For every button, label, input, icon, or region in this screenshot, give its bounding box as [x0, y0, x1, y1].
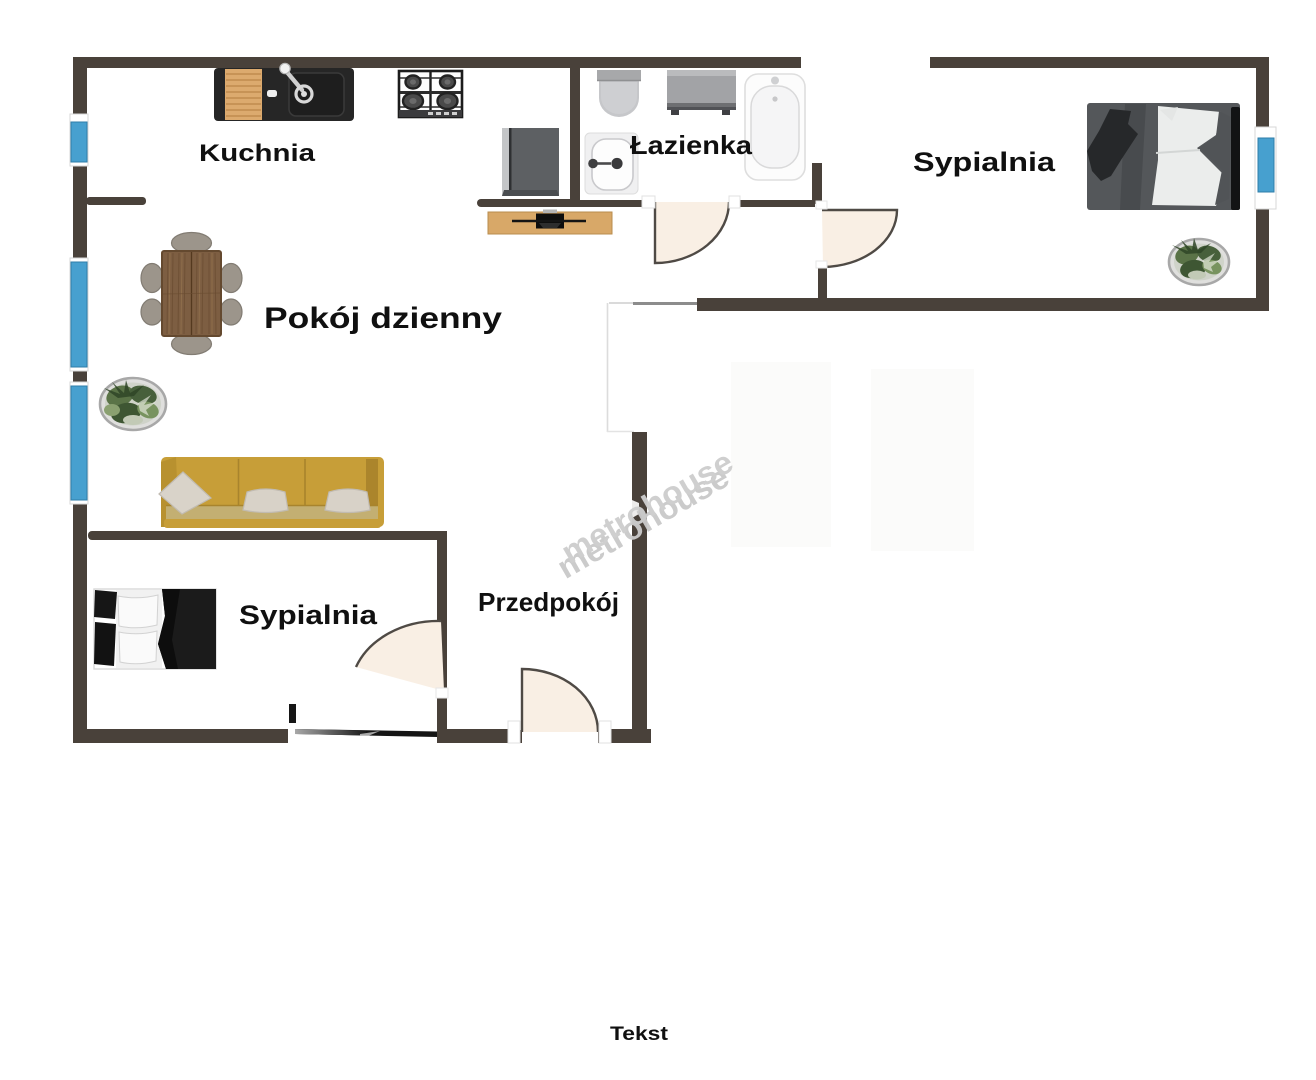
svg-text:Tekst: Tekst	[610, 1024, 669, 1045]
svg-text:Łazienka: Łazienka	[630, 130, 753, 160]
svg-text:Przedpokój: Przedpokój	[478, 587, 619, 617]
svg-text:Sypialnia: Sypialnia	[239, 600, 378, 630]
svg-text:Kuchnia: Kuchnia	[199, 140, 316, 167]
svg-text:Sypialnia: Sypialnia	[913, 147, 1056, 177]
svg-text:Pokój dzienny: Pokój dzienny	[264, 302, 502, 335]
